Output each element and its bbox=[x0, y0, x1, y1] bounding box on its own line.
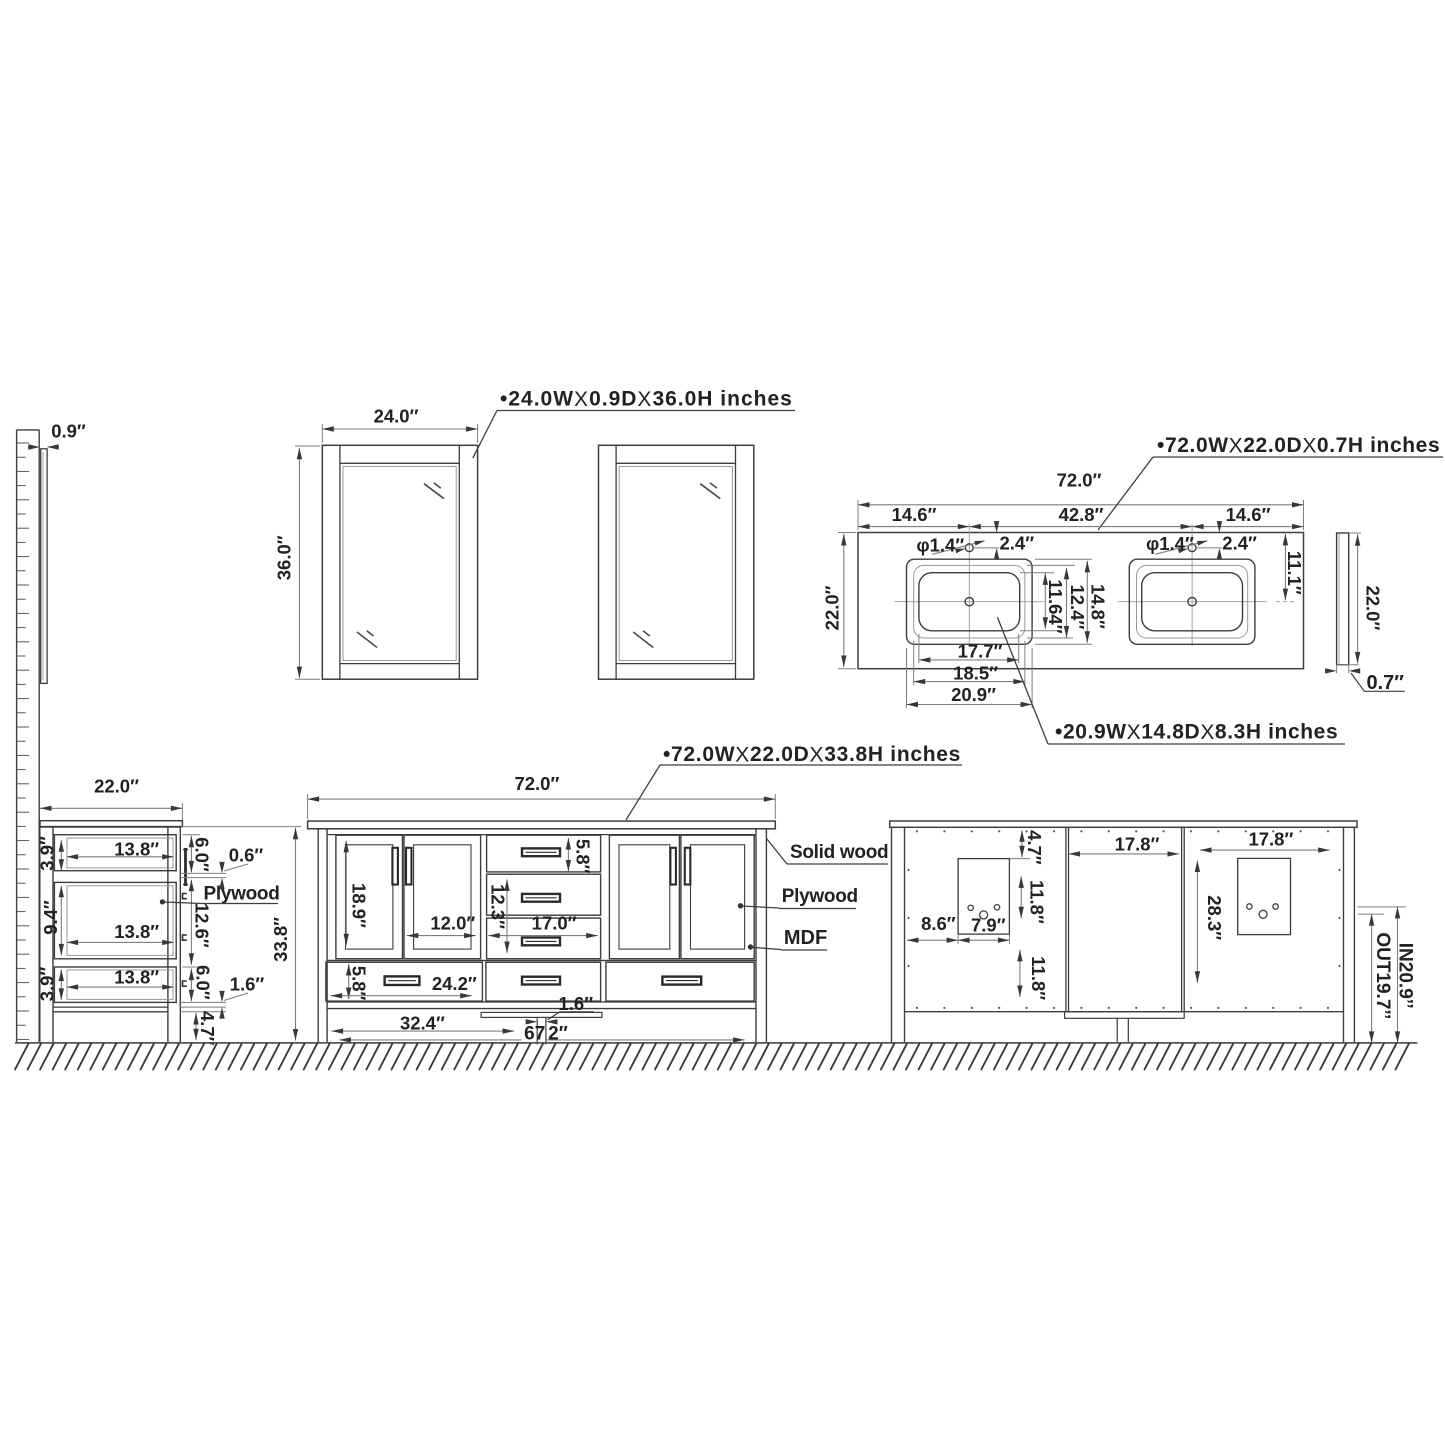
svg-text:2.4″: 2.4″ bbox=[1222, 533, 1257, 554]
svg-text:Solid wood: Solid wood bbox=[790, 842, 888, 863]
svg-text:0.9″: 0.9″ bbox=[51, 421, 86, 442]
svg-text:•72.0WX22.0DX33.8H inches: •72.0WX22.0DX33.8H inches bbox=[663, 743, 961, 766]
svg-text:12.0″: 12.0″ bbox=[430, 913, 475, 934]
svg-text:•72.0WX22.0DX0.7H inches: •72.0WX22.0DX0.7H inches bbox=[1157, 434, 1440, 457]
svg-text:1.6″: 1.6″ bbox=[559, 993, 594, 1014]
svg-text:14.6″: 14.6″ bbox=[892, 504, 937, 525]
svg-text:18.5″: 18.5″ bbox=[953, 662, 998, 683]
svg-text:IN20.9’’: IN20.9’’ bbox=[1394, 943, 1415, 1009]
svg-text:11.64″: 11.64″ bbox=[1045, 579, 1066, 633]
svg-text:2.4″: 2.4″ bbox=[1000, 533, 1035, 554]
svg-text:22.0″: 22.0″ bbox=[1362, 585, 1383, 630]
svg-text:24.0″: 24.0″ bbox=[374, 406, 419, 427]
svg-text:17.8″: 17.8″ bbox=[1115, 834, 1160, 855]
svg-text:MDF: MDF bbox=[784, 927, 827, 949]
svg-text:20.9″: 20.9″ bbox=[951, 684, 996, 705]
svg-text:5.8″: 5.8″ bbox=[573, 839, 594, 874]
svg-text:4.7″: 4.7″ bbox=[1024, 830, 1045, 865]
svg-text:24.2″: 24.2″ bbox=[432, 973, 477, 994]
svg-text:42.8″: 42.8″ bbox=[1059, 504, 1104, 525]
svg-text:12.3″: 12.3″ bbox=[488, 884, 509, 929]
svg-text:Plywood: Plywood bbox=[204, 884, 280, 905]
svg-text:72.0″: 72.0″ bbox=[1057, 470, 1102, 491]
svg-text:9.4″: 9.4″ bbox=[40, 900, 61, 935]
svg-text:32.4″: 32.4″ bbox=[400, 1013, 445, 1034]
svg-text:7.9″: 7.9″ bbox=[971, 914, 1006, 935]
svg-text:6.0″: 6.0″ bbox=[192, 837, 213, 872]
svg-text:17.8″: 17.8″ bbox=[1248, 828, 1293, 849]
svg-text:11.8″: 11.8″ bbox=[1027, 880, 1048, 924]
svg-text:13.8″: 13.8″ bbox=[114, 921, 159, 942]
svg-text:13.8″: 13.8″ bbox=[114, 839, 159, 860]
svg-text:3.9″: 3.9″ bbox=[37, 967, 58, 1002]
svg-text:1.6″: 1.6″ bbox=[230, 974, 265, 995]
svg-text:0.6″: 0.6″ bbox=[229, 845, 264, 866]
svg-text:6.0″: 6.0″ bbox=[193, 965, 214, 1000]
svg-text:17.7″: 17.7″ bbox=[958, 641, 1003, 662]
svg-text:14.6″: 14.6″ bbox=[1226, 504, 1271, 525]
svg-text:2″: 2″ bbox=[548, 1024, 568, 1045]
svg-text:8.6″: 8.6″ bbox=[921, 913, 956, 934]
svg-text:18.9″: 18.9″ bbox=[348, 883, 369, 928]
svg-text:12.4″: 12.4″ bbox=[1067, 584, 1088, 629]
svg-text:22.0″: 22.0″ bbox=[822, 585, 843, 630]
svg-text:72.0″: 72.0″ bbox=[514, 773, 559, 794]
svg-text:12.6″: 12.6″ bbox=[192, 903, 213, 948]
svg-text:22.0″: 22.0″ bbox=[94, 776, 139, 797]
svg-text:φ1.4″: φ1.4″ bbox=[916, 535, 964, 556]
svg-text:14.8″: 14.8″ bbox=[1088, 584, 1109, 629]
svg-text:4.7″: 4.7″ bbox=[197, 1011, 218, 1046]
svg-text:φ1.4″: φ1.4″ bbox=[1146, 533, 1194, 554]
svg-text:OUT19.7’’: OUT19.7’’ bbox=[1372, 932, 1393, 1019]
svg-text:11.8″: 11.8″ bbox=[1028, 956, 1049, 1000]
svg-text:67: 67 bbox=[524, 1024, 545, 1045]
svg-text:•20.9WX14.8DX8.3H inches: •20.9WX14.8DX8.3H inches bbox=[1055, 721, 1338, 744]
svg-text:13.8″: 13.8″ bbox=[114, 967, 159, 988]
svg-text:36.0″: 36.0″ bbox=[273, 535, 294, 580]
svg-text:28.3″: 28.3″ bbox=[1204, 895, 1225, 940]
svg-text:11.1″: 11.1″ bbox=[1284, 551, 1305, 595]
svg-text:33.8″: 33.8″ bbox=[270, 917, 291, 962]
svg-text:17.0″: 17.0″ bbox=[532, 913, 577, 934]
svg-text:•24.0WX0.9DX36.0H inches: •24.0WX0.9DX36.0H inches bbox=[500, 388, 793, 411]
svg-text:0.7″: 0.7″ bbox=[1367, 672, 1405, 694]
svg-text:3.9″: 3.9″ bbox=[37, 836, 58, 871]
svg-text:Plywood: Plywood bbox=[782, 886, 858, 907]
